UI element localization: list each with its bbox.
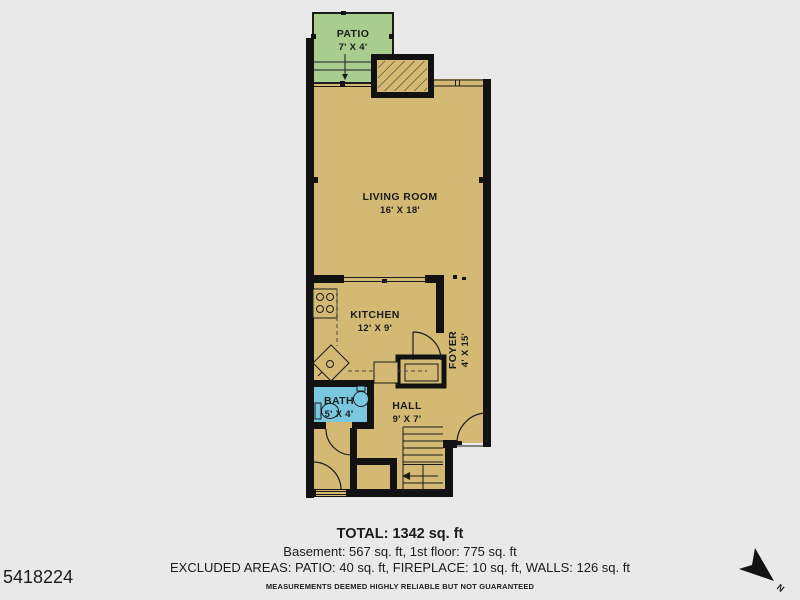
floor-plan: PATIO 7' X 4' LIVING ROOM 16' X 18' KITC… <box>0 0 800 600</box>
total-area-text: TOTAL: 1342 sq. ft <box>0 526 800 542</box>
hall-label: HALL <box>392 400 422 412</box>
bath-label: BATH <box>324 395 354 407</box>
patio-label: PATIO <box>337 28 370 40</box>
excluded-areas-text: EXCLUDED AREAS: PATIO: 40 sq. ft, FIREPL… <box>0 560 800 575</box>
living-room-dims: 16' X 18' <box>380 205 420 216</box>
foyer-dims: 4' X 15' <box>460 333 471 367</box>
floor-areas-text: Basement: 567 sq. ft, 1st floor: 775 sq.… <box>0 544 800 559</box>
listing-id: 5418224 <box>3 567 73 588</box>
kitchen-dims: 12' X 9' <box>358 323 392 334</box>
window-bottom-wall <box>313 489 349 497</box>
floor-area <box>310 79 487 496</box>
stove-symbol <box>313 289 337 318</box>
area-summary: TOTAL: 1342 sq. ft Basement: 567 sq. ft,… <box>0 526 800 591</box>
foyer-label: FOYER <box>447 331 459 369</box>
fireplace-symbol <box>374 57 431 95</box>
bath-dims: 5' X 4' <box>325 409 354 420</box>
living-room-label: LIVING ROOM <box>363 191 438 203</box>
disclaimer-text: MEASUREMENTS DEEMED HIGHLY RELIABLE BUT … <box>0 582 800 591</box>
hall-dims: 9' X 7' <box>393 414 422 425</box>
kitchen-label: KITCHEN <box>350 309 399 321</box>
counter-symbol <box>374 362 398 383</box>
patio-dims: 7' X 4' <box>339 42 368 53</box>
